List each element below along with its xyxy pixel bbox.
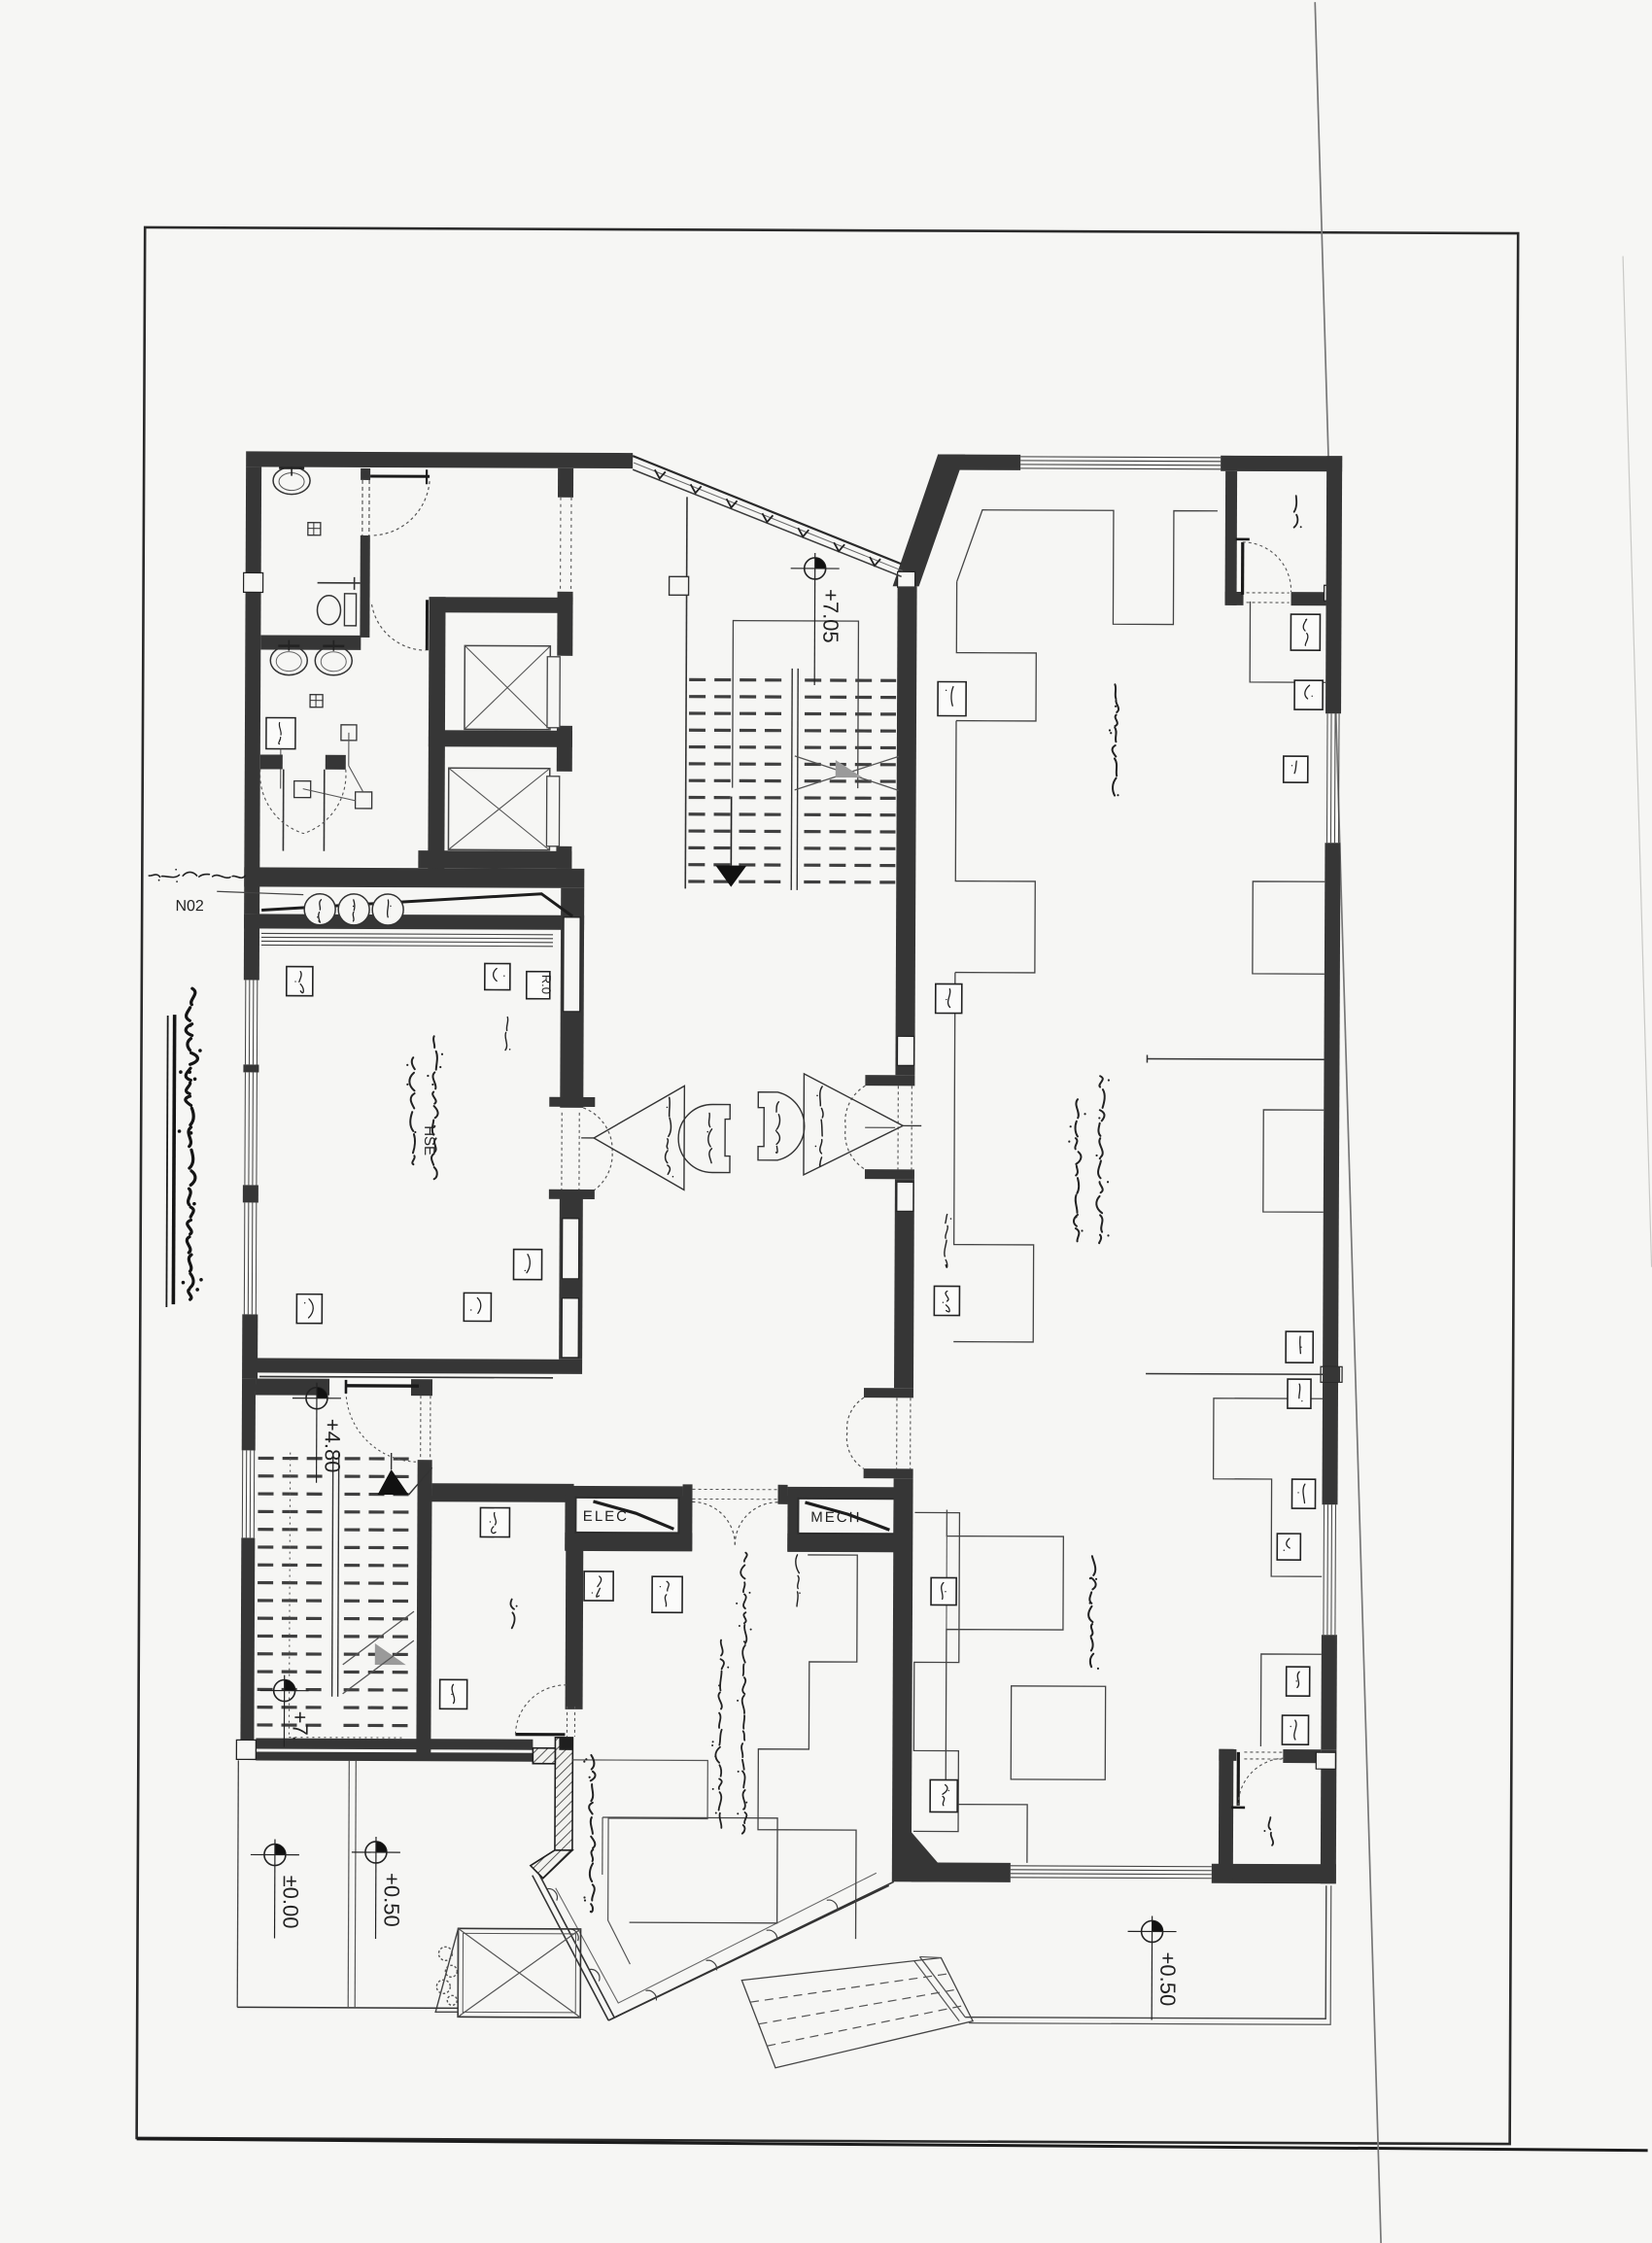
svg-text:+0.50: +0.50: [380, 1873, 404, 1927]
svg-text:N02: N02: [175, 898, 204, 914]
svg-text:+7.05: +7.05: [818, 589, 843, 643]
svg-text:+0.50: +0.50: [1155, 1951, 1180, 2006]
svg-text:+7.: +7.: [288, 1711, 312, 1742]
svg-text:MECH: MECH: [810, 1509, 861, 1526]
svg-text:+4.80: +4.80: [321, 1419, 345, 1473]
svg-text:±0.00: ±0.00: [279, 1876, 303, 1929]
svg-text:R.0: R.0: [539, 975, 554, 994]
svg-text:HSE: HSE: [421, 1125, 437, 1156]
svg-text:ELEC: ELEC: [583, 1508, 629, 1525]
